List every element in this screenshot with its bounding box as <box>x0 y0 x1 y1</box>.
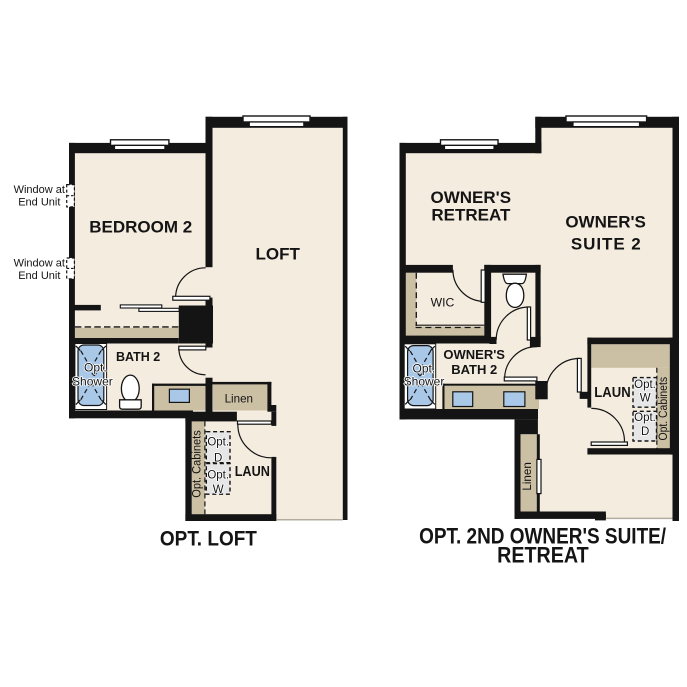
svg-text:OWNER'S: OWNER'S <box>431 188 512 207</box>
svg-text:Window at: Window at <box>14 258 65 270</box>
svg-text:BATH 2: BATH 2 <box>451 362 497 377</box>
svg-text:Opt.: Opt. <box>84 361 107 375</box>
svg-text:Linen: Linen <box>521 462 534 490</box>
svg-text:Opt.: Opt. <box>207 437 229 449</box>
svg-text:WIC: WIC <box>431 296 455 310</box>
svg-text:Opt.: Opt. <box>413 362 436 376</box>
svg-text:LOFT: LOFT <box>256 244 301 263</box>
svg-text:OWNER'S: OWNER'S <box>443 347 505 362</box>
svg-text:Opt. Cabinets: Opt. Cabinets <box>191 430 203 498</box>
svg-text:SUITE 2: SUITE 2 <box>571 234 641 253</box>
svg-text:RETREAT: RETREAT <box>431 205 511 224</box>
svg-text:LAUN: LAUN <box>594 384 630 401</box>
svg-text:D: D <box>214 453 222 465</box>
svg-text:LAUN: LAUN <box>235 463 270 480</box>
svg-text:OWNER'S: OWNER'S <box>565 212 646 231</box>
svg-text:End Unit: End Unit <box>18 270 60 282</box>
svg-text:Opt.: Opt. <box>634 379 656 391</box>
svg-text:Opt. Cabinets: Opt. Cabinets <box>658 377 670 441</box>
svg-text:Opt.: Opt. <box>207 470 229 482</box>
svg-text:Shower: Shower <box>404 375 445 389</box>
svg-text:D: D <box>641 426 649 438</box>
svg-text:Opt.: Opt. <box>634 412 656 424</box>
svg-text:Window at: Window at <box>14 184 65 196</box>
svg-text:W: W <box>213 484 224 496</box>
svg-text:W: W <box>640 393 651 405</box>
svg-text:OPT. LOFT: OPT. LOFT <box>160 527 257 550</box>
svg-text:RETREAT: RETREAT <box>497 542 589 567</box>
svg-text:End Unit: End Unit <box>18 196 60 208</box>
svg-text:Linen: Linen <box>225 392 253 405</box>
svg-text:Shower: Shower <box>72 374 113 388</box>
svg-text:BEDROOM 2: BEDROOM 2 <box>89 218 192 237</box>
svg-text:BATH 2: BATH 2 <box>116 350 160 364</box>
